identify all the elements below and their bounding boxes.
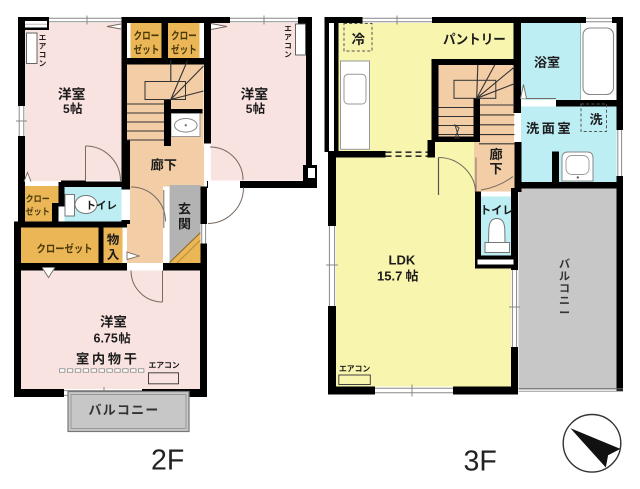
svg-text:6.75: 6.75 <box>94 332 118 346</box>
svg-text:LDK: LDK <box>389 253 416 268</box>
svg-text:5: 5 <box>246 102 253 116</box>
svg-text:5: 5 <box>63 102 70 116</box>
svg-text:2F: 2F <box>151 445 184 477</box>
svg-text:3F: 3F <box>464 446 497 478</box>
svg-text:15.7: 15.7 <box>377 269 402 284</box>
